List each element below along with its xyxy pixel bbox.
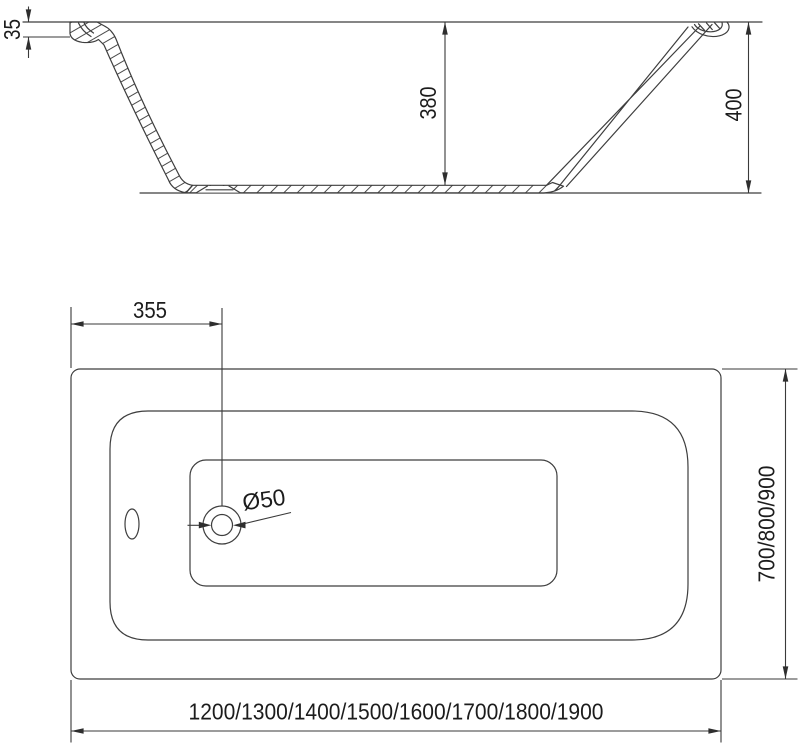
- dim-label-length-options: 1200/1300/1400/1500/1600/1700/1800/1900: [189, 699, 604, 725]
- arrowhead: [199, 522, 212, 529]
- bathtub-technical-drawing: 35 380 400 355: [0, 0, 800, 748]
- tub-outer-edge: [71, 369, 721, 679]
- plan-view: 355 Ø50 700/800/900 1200/1300/1400/1500/…: [71, 297, 798, 743]
- dim-label-drain-offset: 355: [133, 297, 167, 323]
- right-rim-hatch: [699, 23, 720, 31]
- left-wall-section: [70, 22, 193, 193]
- dimension-inner-depth: 380: [415, 22, 445, 185]
- arrowhead: [233, 522, 246, 529]
- dimension-length-options: 1200/1300/1400/1500/1600/1700/1800/1900: [71, 680, 721, 743]
- dim-label-rim-lip-height: 35: [0, 19, 25, 40]
- dim-label-overall-height: 400: [721, 89, 747, 122]
- floor-section: [186, 183, 564, 194]
- side-view: 35 380 400: [0, 7, 762, 194]
- overflow-hole: [125, 509, 139, 539]
- dim-label-width-options: 700/800/900: [754, 466, 780, 583]
- dimension-overall-height: 400: [721, 22, 749, 193]
- dimension-rim-lip-height: 35: [0, 7, 70, 59]
- dim-label-drain-diameter: Ø50: [241, 484, 287, 516]
- right-wall-lines: [547, 25, 713, 191]
- drain-hole-inner: [212, 515, 233, 536]
- dimension-width-options: 700/800/900: [722, 369, 798, 679]
- dimension-drain-offset: 355: [71, 297, 222, 368]
- dim-label-inner-depth: 380: [415, 87, 441, 120]
